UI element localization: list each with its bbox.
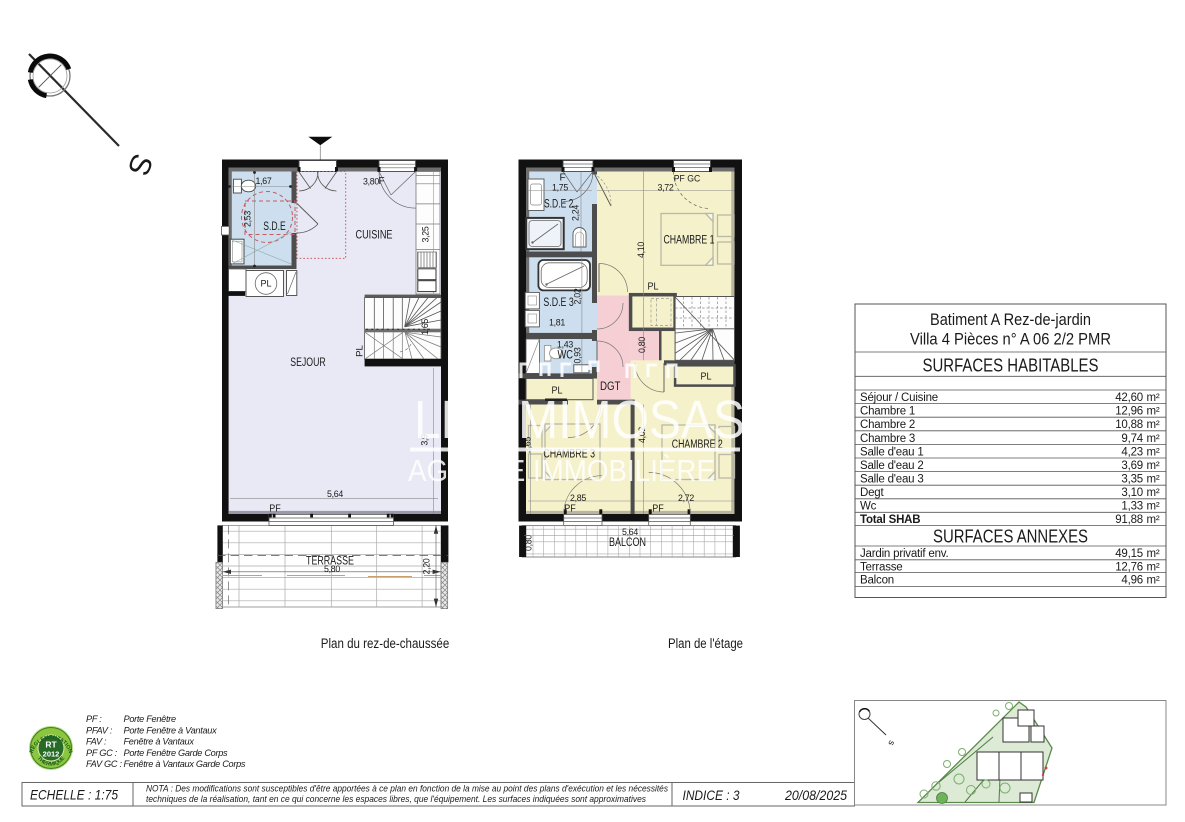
svg-text:5,64: 5,64 bbox=[327, 489, 343, 499]
svg-text:Wc: Wc bbox=[860, 501, 877, 513]
svg-text:AGENCE IMMOBILIÈRE: AGENCE IMMOBILIÈRE bbox=[408, 453, 715, 488]
svg-text:PFAV :: PFAV : bbox=[86, 725, 113, 735]
svg-text:FAV :: FAV : bbox=[86, 737, 107, 747]
svg-text:PL: PL bbox=[648, 282, 659, 293]
svg-text:Chambre 3: Chambre 3 bbox=[860, 433, 915, 445]
svg-text:m²: m² bbox=[1147, 433, 1160, 445]
svg-text:m²: m² bbox=[1147, 514, 1160, 526]
svg-text:Chambre 2: Chambre 2 bbox=[860, 419, 915, 431]
svg-text:PF :: PF : bbox=[86, 714, 102, 724]
svg-text:m²: m² bbox=[1147, 501, 1160, 513]
svg-text:0,80: 0,80 bbox=[524, 535, 534, 551]
svg-text:3,72: 3,72 bbox=[658, 183, 674, 193]
svg-text:Salle d'eau 3: Salle d'eau 3 bbox=[860, 474, 924, 486]
svg-text:PF GC :: PF GC : bbox=[86, 748, 118, 758]
svg-text:91,88: 91,88 bbox=[1115, 514, 1143, 526]
svg-text:CHAMBRE 1: CHAMBRE 1 bbox=[664, 235, 715, 247]
svg-text:1,33: 1,33 bbox=[1121, 501, 1143, 513]
svg-text:S.D.E 2: S.D.E 2 bbox=[544, 199, 574, 211]
svg-text:PF: PF bbox=[652, 503, 664, 515]
svg-text:9,74: 9,74 bbox=[1121, 433, 1143, 445]
svg-text:PL: PL bbox=[260, 279, 271, 289]
svg-text:SURFACES HABITABLES: SURFACES HABITABLES bbox=[923, 355, 1099, 376]
svg-text:PL: PL bbox=[701, 372, 712, 383]
svg-text:12,96: 12,96 bbox=[1115, 406, 1143, 418]
svg-text:Salle d'eau 1: Salle d'eau 1 bbox=[860, 446, 924, 458]
svg-text:Fenêtre à Vantaux Garde Corps: Fenêtre à Vantaux Garde Corps bbox=[124, 759, 246, 769]
svg-text:RT: RT bbox=[45, 740, 57, 750]
svg-text:1,43: 1,43 bbox=[557, 340, 573, 350]
svg-text:S.D.E 3: S.D.E 3 bbox=[543, 297, 574, 309]
svg-text:3,35: 3,35 bbox=[1121, 474, 1143, 486]
svg-text:F: F bbox=[379, 176, 385, 187]
svg-text:Porte Fenêtre: Porte Fenêtre bbox=[124, 714, 176, 724]
svg-text:Villa 4 Pièces n° A 06 2/2 PMR: Villa 4 Pièces n° A 06 2/2 PMR bbox=[910, 330, 1111, 349]
svg-text:WC: WC bbox=[557, 350, 573, 362]
svg-text:1,81: 1,81 bbox=[549, 318, 565, 328]
svg-text:4,10: 4,10 bbox=[636, 242, 646, 258]
svg-text:m²: m² bbox=[1147, 561, 1160, 573]
svg-text:Fenêtre à Vantaux: Fenêtre à Vantaux bbox=[124, 737, 195, 747]
svg-text:Plan de l'étage: Plan de l'étage bbox=[668, 636, 743, 651]
svg-text:Jardin privatif env.: Jardin privatif env. bbox=[860, 548, 948, 560]
svg-text:INDICE : 3: INDICE : 3 bbox=[683, 788, 740, 803]
svg-text:3,69: 3,69 bbox=[1121, 460, 1143, 472]
svg-text:20/08/2025: 20/08/2025 bbox=[784, 788, 847, 803]
svg-text:m²: m² bbox=[1147, 392, 1160, 404]
svg-text:5,80: 5,80 bbox=[324, 564, 340, 574]
svg-text:Plan du rez-de-chaussée: Plan du rez-de-chaussée bbox=[321, 636, 450, 651]
svg-text:Séjour / Cuisine: Séjour / Cuisine bbox=[860, 392, 938, 404]
svg-text:SEJOUR: SEJOUR bbox=[290, 357, 326, 369]
svg-text:2012: 2012 bbox=[43, 750, 60, 759]
svg-text:m²: m² bbox=[1147, 419, 1160, 431]
svg-text:LES MIMOSAS: LES MIMOSAS bbox=[414, 390, 745, 450]
svg-text:2,72: 2,72 bbox=[678, 493, 694, 503]
svg-text:Salle d'eau 2: Salle d'eau 2 bbox=[860, 460, 924, 472]
svg-text:Porte Fenêtre à Vantaux: Porte Fenêtre à Vantaux bbox=[124, 725, 218, 735]
svg-text:m²: m² bbox=[1147, 460, 1160, 472]
svg-text:Degt: Degt bbox=[860, 487, 884, 499]
svg-text:ECHELLE : 1:75: ECHELLE : 1:75 bbox=[30, 787, 118, 803]
svg-text:PF: PF bbox=[564, 503, 576, 515]
svg-text:Chambre 1: Chambre 1 bbox=[860, 406, 915, 418]
svg-text:S.D.E: S.D.E bbox=[263, 221, 286, 233]
svg-text:10,88: 10,88 bbox=[1115, 419, 1143, 431]
svg-text:m²: m² bbox=[1147, 548, 1160, 560]
svg-text:m²: m² bbox=[1147, 575, 1160, 587]
svg-text:techniques de la réalisation,: techniques de la réalisation, tant en ce… bbox=[146, 794, 646, 805]
svg-text:1,67: 1,67 bbox=[256, 176, 272, 186]
svg-text:PL: PL bbox=[355, 345, 366, 357]
svg-text:Batiment A Rez-de-jardin: Batiment A Rez-de-jardin bbox=[930, 310, 1091, 329]
svg-text:2,85: 2,85 bbox=[570, 493, 586, 503]
svg-text:FAV GC :: FAV GC : bbox=[86, 759, 122, 769]
svg-text:4,96: 4,96 bbox=[1121, 575, 1143, 587]
svg-text:2,20: 2,20 bbox=[422, 558, 432, 574]
svg-text:3,10: 3,10 bbox=[1121, 487, 1143, 499]
svg-text:Porte Fenêtre Garde Corps: Porte Fenêtre Garde Corps bbox=[124, 748, 229, 758]
svg-text:SURFACES ANNEXES: SURFACES ANNEXES bbox=[933, 526, 1088, 547]
svg-text:m²: m² bbox=[1147, 446, 1160, 458]
svg-text:12,76: 12,76 bbox=[1115, 561, 1143, 573]
svg-text:3,80: 3,80 bbox=[363, 177, 379, 187]
svg-text:PF GC: PF GC bbox=[674, 174, 701, 185]
svg-text:2,24: 2,24 bbox=[571, 205, 581, 221]
svg-text:3,25: 3,25 bbox=[421, 226, 431, 242]
svg-text:CUISINE: CUISINE bbox=[356, 230, 393, 242]
svg-text:m²: m² bbox=[1147, 487, 1160, 499]
svg-text:0,80: 0,80 bbox=[637, 337, 647, 353]
svg-text:4,23: 4,23 bbox=[1121, 446, 1143, 458]
svg-text:1,75: 1,75 bbox=[552, 183, 568, 193]
svg-text:PF: PF bbox=[269, 503, 281, 515]
svg-text:Terrasse: Terrasse bbox=[860, 561, 903, 573]
svg-text:Balcon: Balcon bbox=[860, 575, 894, 587]
svg-text:m²: m² bbox=[1147, 474, 1160, 486]
svg-text:1,65: 1,65 bbox=[420, 319, 430, 335]
svg-text:42,60: 42,60 bbox=[1115, 392, 1143, 404]
svg-text:2,02: 2,02 bbox=[573, 288, 583, 304]
svg-text:2,53: 2,53 bbox=[243, 211, 253, 227]
svg-text:Total SHAB: Total SHAB bbox=[860, 514, 920, 526]
svg-text:BALCON: BALCON bbox=[609, 537, 646, 549]
svg-text:m²: m² bbox=[1147, 406, 1160, 418]
svg-text:49,15: 49,15 bbox=[1115, 548, 1143, 560]
svg-text:0,93: 0,93 bbox=[573, 347, 583, 363]
